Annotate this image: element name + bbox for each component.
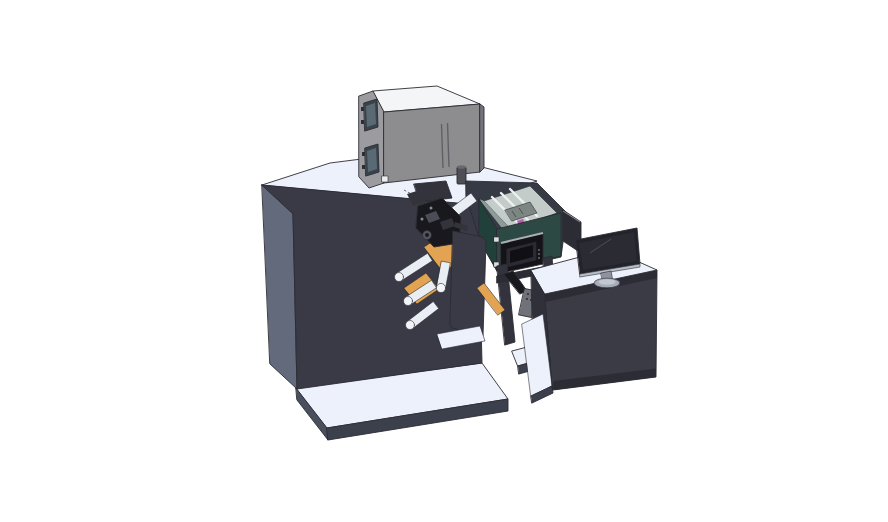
- exhaust-cylinder: [457, 167, 466, 184]
- cabinet-label-plate: [382, 176, 388, 182]
- panel-pad: [494, 237, 499, 242]
- front-guard-plate: [450, 231, 486, 336]
- window-hinge: [361, 120, 364, 124]
- exhaust-cylinder-top: [457, 165, 466, 169]
- window-hinge: [362, 152, 365, 156]
- electrical-cabinet: [359, 86, 484, 188]
- guide-roller-3-cap: [406, 321, 415, 330]
- cad-viewport: [0, 0, 888, 522]
- idler-roller-cap: [436, 283, 445, 292]
- mechanism-pin: [421, 218, 424, 221]
- window-hinge: [361, 107, 364, 111]
- pendant-button: [527, 293, 529, 295]
- window-hinge: [362, 165, 365, 169]
- panel-button: [538, 257, 540, 259]
- cabinet-right-edge: [480, 104, 484, 172]
- cabinet-window-lower-glass: [367, 148, 377, 172]
- pendant-button: [526, 298, 528, 300]
- cabinet-window-upper-glass: [366, 103, 376, 127]
- mechanism-hub-center: [425, 233, 429, 237]
- panel-button: [538, 253, 540, 255]
- guide-roller-2-cap: [404, 297, 413, 306]
- mechanism-pin: [430, 207, 433, 210]
- panel-button: [538, 249, 540, 251]
- guide-roller-1-cap: [395, 273, 404, 282]
- monitor-base-inner: [599, 279, 616, 285]
- cad-render-stage: [0, 0, 888, 522]
